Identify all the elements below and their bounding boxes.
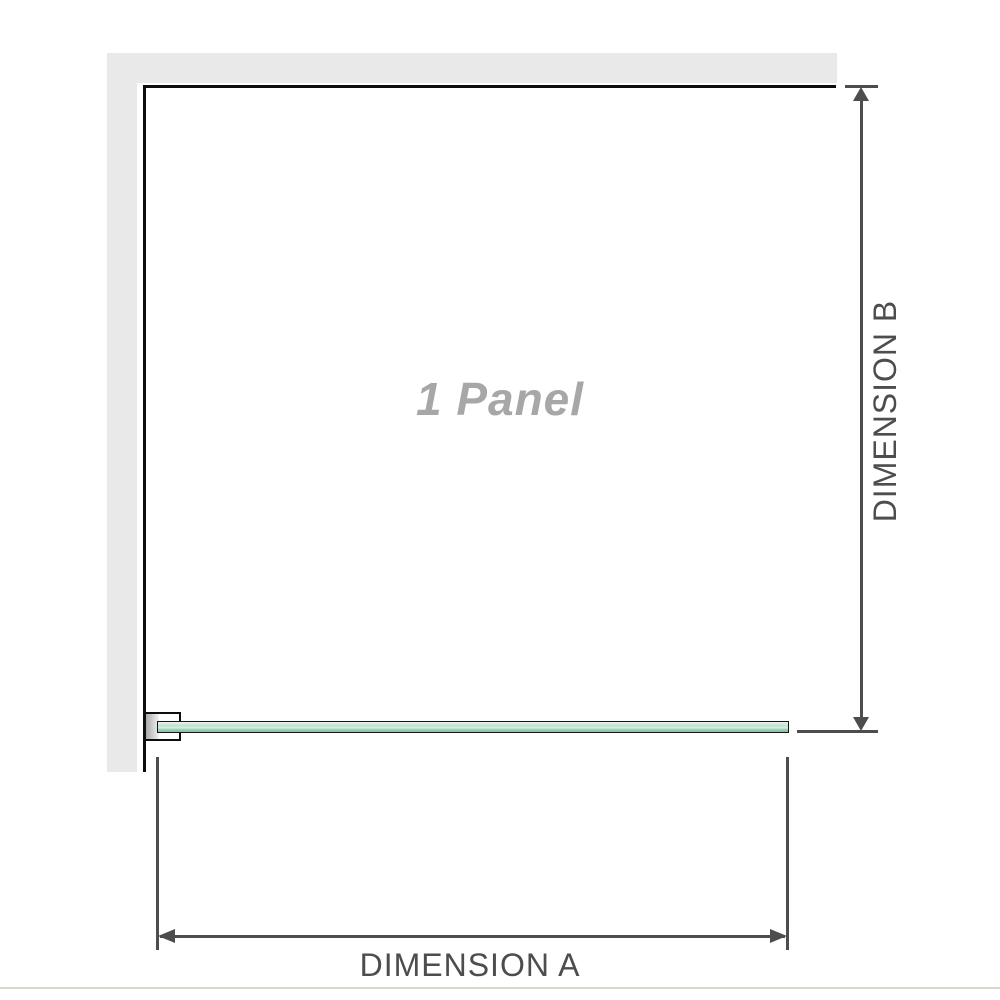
- wall-left-strip: [107, 53, 137, 772]
- dimension-b-line: [860, 94, 863, 722]
- dimension-a-label: DIMENSION A: [320, 946, 620, 984]
- dimension-a-left-extension: [156, 757, 159, 950]
- dimension-a-right-extension: [786, 757, 789, 950]
- arrow-right-icon: [770, 929, 787, 943]
- wall-top-strip: [107, 53, 837, 83]
- panel-left-edge: [143, 85, 146, 772]
- arrow-left-icon: [158, 929, 175, 943]
- panel-top-edge: [143, 85, 836, 88]
- dimension-b-label: DIMENSION B: [868, 261, 902, 561]
- arrow-down-icon: [853, 717, 869, 731]
- shower-panel-diagram: 1 Panel DIMENSION B DIMENSION A: [0, 0, 1000, 1000]
- page-divider-line: [0, 987, 1000, 989]
- glass-panel-bar: [157, 721, 789, 733]
- panel-count-watermark: 1 Panel: [350, 371, 650, 427]
- arrow-up-icon: [853, 87, 869, 101]
- dimension-a-line: [160, 935, 785, 938]
